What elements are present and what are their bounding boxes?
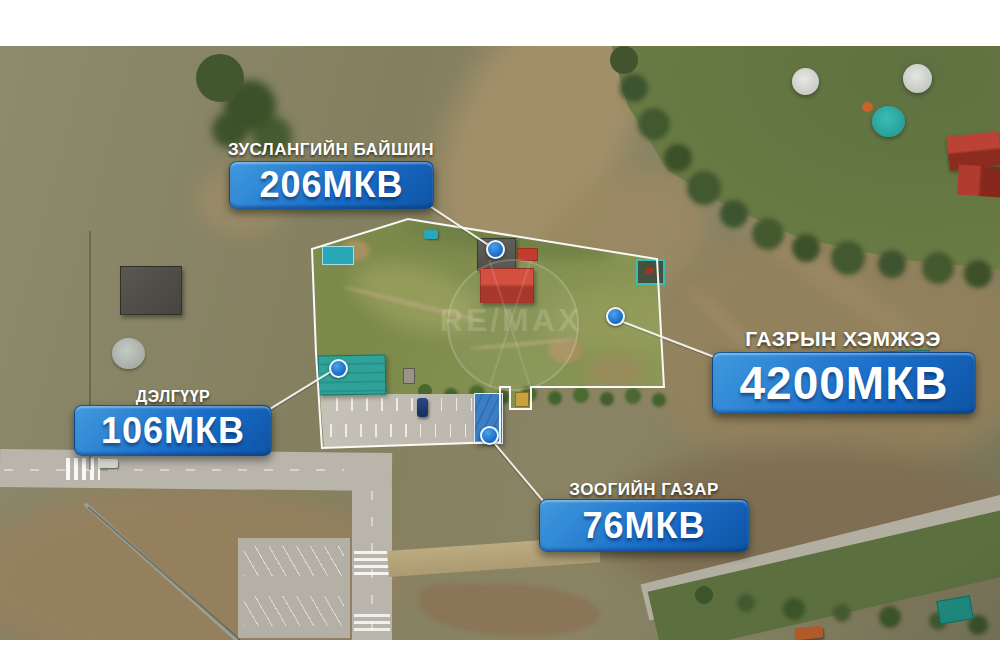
utility-box xyxy=(636,259,665,285)
badge-shop-value: 106МКВ xyxy=(101,410,245,452)
badge-restaurant-value: 76МКВ xyxy=(582,505,705,547)
teal-truck xyxy=(424,230,438,239)
teal-tarp xyxy=(322,246,354,265)
yurt xyxy=(792,68,819,95)
crosswalk xyxy=(354,551,390,577)
badge-shop: 106МКВ xyxy=(74,405,272,456)
yurt xyxy=(903,64,932,93)
connector-restaurant xyxy=(489,437,546,504)
aerial-photo: RE/MAX ЗУСЛАНГИЙН БАЙШИН 206МКВ ГАЗРЫН Х… xyxy=(0,46,1000,640)
crosswalk xyxy=(354,614,390,634)
parking-lines xyxy=(336,398,486,411)
badge-land: 4200МКВ xyxy=(712,352,976,414)
crosswalk xyxy=(66,458,100,480)
tree-cluster xyxy=(196,54,244,102)
shop-building xyxy=(318,354,387,395)
badge-land-value: 4200МКВ xyxy=(740,356,949,410)
pool xyxy=(872,106,905,137)
label-restaurant-title: ЗООГИЙН ГАЗАР xyxy=(569,480,719,500)
remax-watermark-text: RE/MAX xyxy=(440,302,582,339)
road-centerline xyxy=(4,469,344,471)
orange-truck xyxy=(794,626,823,640)
marker-shop xyxy=(329,359,348,378)
parked-car xyxy=(417,398,428,417)
neighbor-red-house xyxy=(957,165,1000,198)
gray-house xyxy=(120,266,182,315)
marker-land xyxy=(606,307,625,326)
badge-restaurant: 76МКВ xyxy=(539,499,749,552)
dirt-island xyxy=(420,584,600,636)
marker-summer-house xyxy=(486,240,505,259)
tree-band xyxy=(610,46,638,74)
label-shop-title: ДЭЛГҮҮР xyxy=(136,388,210,406)
label-land-title: ГАЗРЫН ХЭМЖЭЭ xyxy=(745,327,941,351)
badge-summer-house: 206МКВ xyxy=(229,161,434,209)
annotated-aerial-image: RE/MAX ЗУСЛАНГИЙН БАЙШИН 206МКВ ГАЗРЫН Х… xyxy=(0,0,1000,667)
teal-shed xyxy=(936,595,974,625)
small-hut xyxy=(403,368,415,384)
parking-lines xyxy=(244,546,344,576)
tent-orange xyxy=(862,102,873,112)
label-summer-house-title: ЗУСЛАНГИЙН БАЙШИН xyxy=(228,140,434,160)
dirt-spot xyxy=(588,354,644,388)
badge-summer-house-value: 206МКВ xyxy=(259,164,403,206)
yellow-hut xyxy=(515,392,529,407)
marker-restaurant xyxy=(480,426,499,445)
parking-lines xyxy=(244,596,344,626)
white-van xyxy=(98,459,118,468)
tree-row xyxy=(695,586,713,604)
gray-yurt xyxy=(112,338,145,369)
parking-lines xyxy=(330,424,488,437)
